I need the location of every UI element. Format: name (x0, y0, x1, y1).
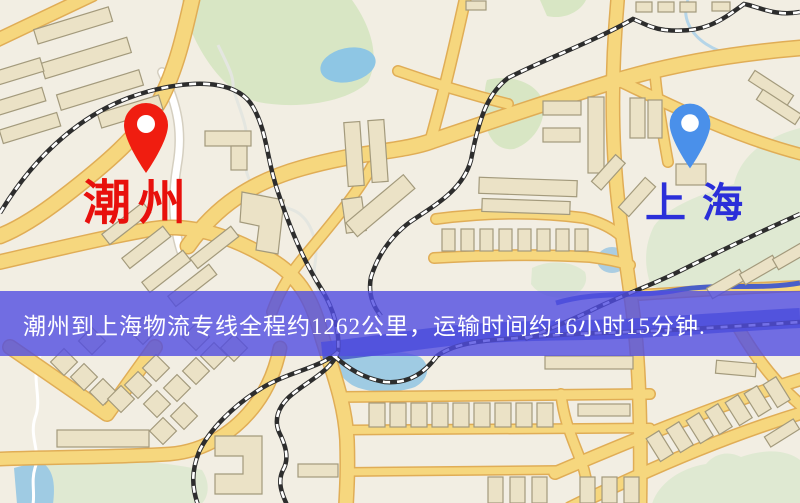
red-pin-shape (124, 103, 168, 173)
map-image (0, 0, 800, 503)
destination-label: 上海 (645, 183, 759, 224)
blue-pin-hole (681, 114, 699, 132)
origin-label: 潮州 (83, 180, 193, 228)
route-info-banner: 潮州到上海物流专线全程约1262公里，运输时间约16小时15分钟. (0, 291, 800, 356)
destination-pin[interactable] (665, 102, 715, 175)
red-pin-hole (137, 115, 155, 133)
blue-location-pin-icon (665, 102, 715, 170)
logistics-route-map: 潮州到上海物流专线全程约1262公里，运输时间约16小时15分钟. 潮州 上海 (0, 0, 800, 503)
origin-pin[interactable] (119, 102, 173, 179)
route-info-text: 潮州到上海物流专线全程约1262公里，运输时间约16小时15分钟. (0, 307, 706, 341)
blue-pin-shape (670, 104, 711, 169)
red-location-pin-icon (119, 102, 173, 174)
